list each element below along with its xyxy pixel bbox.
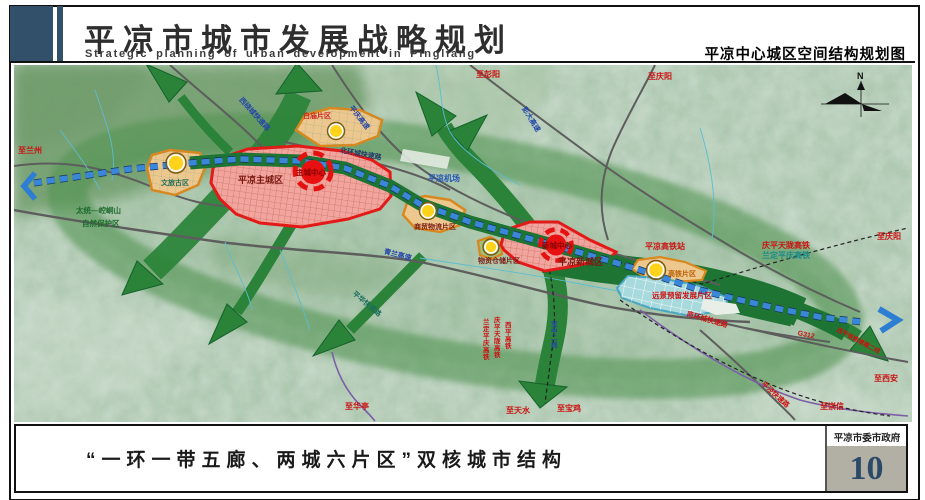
svg-text:商贸物流片区: 商贸物流片区 — [414, 222, 456, 231]
svg-text:高铁片区: 高铁片区 — [668, 269, 696, 278]
svg-text:至庆阳: 至庆阳 — [877, 231, 901, 241]
svg-text:N: N — [857, 71, 864, 81]
svg-text:至庆阳: 至庆阳 — [648, 71, 672, 81]
svg-text:至华亭: 至华亭 — [345, 401, 369, 411]
svg-text:远景预留发展片区: 远景预留发展片区 — [652, 290, 712, 300]
svg-text:至宝鸡: 至宝鸡 — [557, 403, 581, 413]
svg-text:兰定平庆高铁: 兰定平庆高铁 — [482, 317, 490, 361]
svg-text:主城中心: 主城中心 — [296, 167, 326, 177]
svg-text:至天水: 至天水 — [506, 405, 531, 415]
svg-text:庆平天陇高铁: 庆平天陇高铁 — [493, 315, 501, 359]
svg-text:宝中二线: 宝中二线 — [551, 319, 558, 349]
svg-text:文旅古区: 文旅古区 — [161, 178, 189, 187]
svg-text:白庙片区: 白庙片区 — [303, 111, 331, 120]
svg-text:物资仓储片区: 物资仓储片区 — [478, 256, 520, 265]
svg-text:西平高铁: 西平高铁 — [504, 321, 512, 350]
svg-text:至西安: 至西安 — [874, 373, 898, 383]
svg-text:至彭阳: 至彭阳 — [476, 69, 500, 79]
svg-text:平凉高铁站: 平凉高铁站 — [645, 241, 685, 251]
svg-text:至崇信: 至崇信 — [820, 401, 844, 411]
svg-text:太统—崆峒山: 太统—崆峒山 — [76, 205, 121, 215]
svg-text:新城中心: 新城中心 — [542, 240, 572, 250]
svg-text:庆平天陇高铁: 庆平天陇高铁 — [761, 240, 810, 250]
svg-text:平凉主城区: 平凉主城区 — [238, 174, 283, 185]
svg-text:至兰州: 至兰州 — [18, 145, 42, 155]
svg-text:兰定平庆高铁: 兰定平庆高铁 — [762, 250, 810, 260]
svg-text:平凉新城区: 平凉新城区 — [558, 256, 603, 267]
svg-text:自然保护区: 自然保护区 — [82, 218, 120, 228]
svg-text:平凉机场: 平凉机场 — [428, 173, 460, 183]
